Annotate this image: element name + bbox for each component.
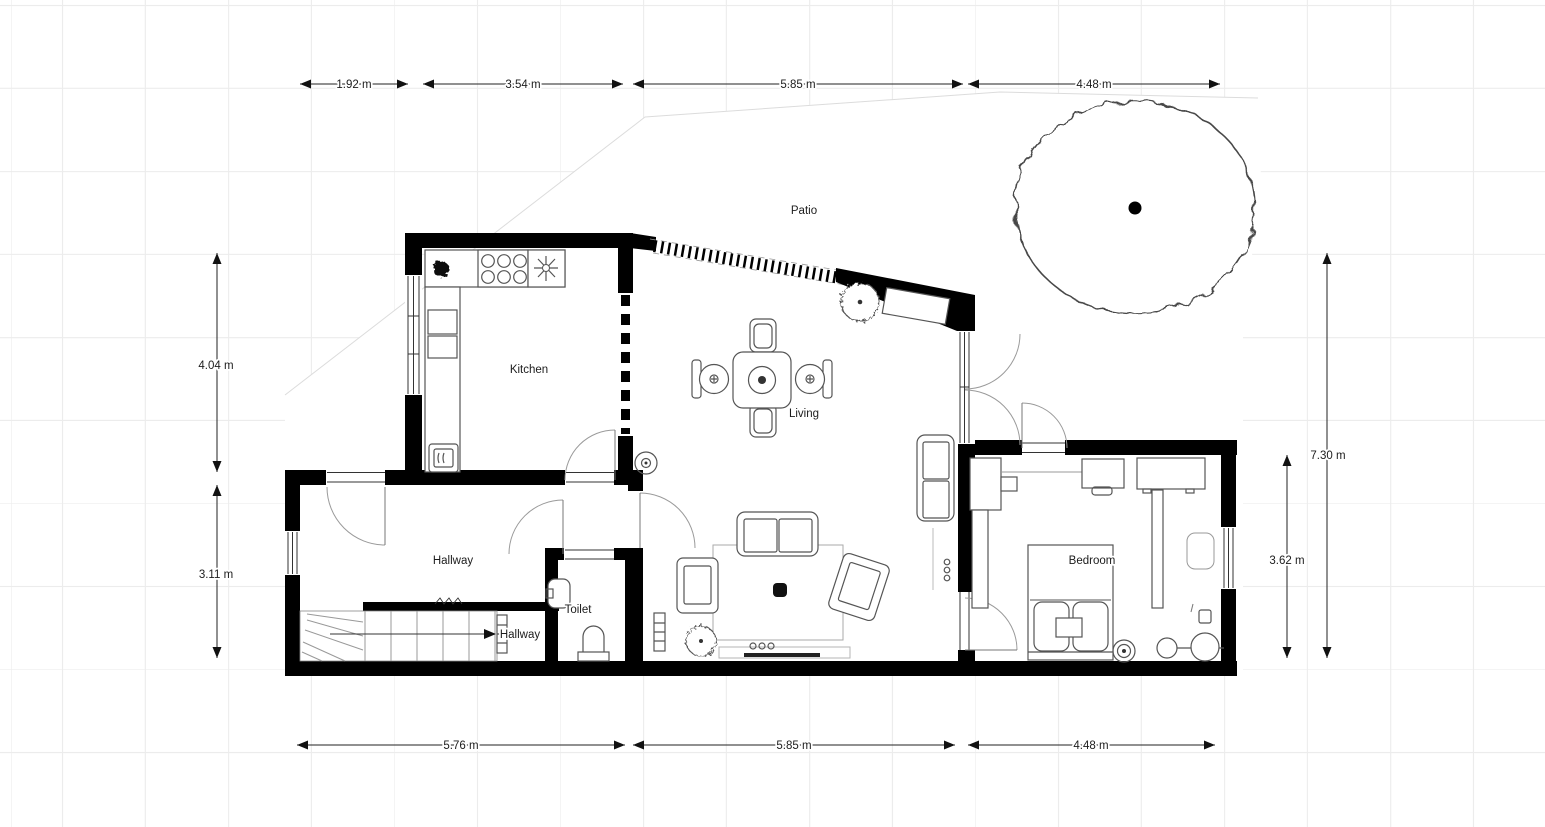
wall-hall-top-left[interactable] — [285, 470, 327, 485]
wall-kitchen-top[interactable] — [405, 233, 633, 248]
dimension-left-1: 4.04 m — [198, 253, 233, 472]
svg-text:4.04 m: 4.04 m — [198, 360, 233, 372]
wall-bedroom-east-upper[interactable] — [1221, 440, 1236, 528]
svg-text:3.62 m: 3.62 m — [1269, 555, 1304, 567]
wall-hall-living-lower[interactable] — [625, 548, 643, 661]
floorplan-canvas[interactable]: Patio Kitchen Living Hallway Hallway Toi… — [0, 0, 1545, 827]
sofa-two-seat[interactable] — [737, 512, 818, 556]
svg-text:5.85 m: 5.85 m — [776, 740, 811, 752]
svg-text:4.48 m: 4.48 m — [1073, 740, 1108, 752]
wall-hall-top-right[interactable] — [385, 470, 408, 485]
svg-text:1.92 m: 1.92 m — [336, 79, 371, 91]
kitchen-window[interactable] — [405, 275, 422, 395]
kitchen-plant[interactable] — [433, 261, 449, 277]
wall-hall-living-upper[interactable] — [628, 485, 643, 491]
wall-toilet-top-right[interactable] — [614, 548, 643, 560]
kitchen-label[interactable]: Kitchen — [510, 364, 548, 376]
wall-bottom[interactable] — [285, 661, 1237, 676]
oven[interactable] — [429, 444, 458, 472]
kitchen-sink[interactable] — [428, 310, 457, 358]
wall-living-bedroom-lower[interactable] — [958, 650, 975, 661]
wall-kitchen-west-upper[interactable] — [405, 233, 422, 276]
dimension-top-2: 3.54 m — [423, 79, 623, 91]
wall-toilet-top-left[interactable] — [545, 548, 565, 560]
svg-text:3.11 m: 3.11 m — [199, 569, 233, 581]
toilet-label[interactable]: Toilet — [565, 604, 593, 616]
wall-stair-guard[interactable] — [363, 602, 559, 611]
dimension-left-2: 3.11 m — [199, 485, 233, 658]
potted-plant-rug[interactable] — [686, 626, 716, 656]
patio-label[interactable]: Patio — [791, 205, 817, 217]
tree-trunk — [1129, 202, 1142, 215]
desk-large[interactable] — [1137, 458, 1205, 493]
stove[interactable] — [478, 250, 528, 287]
tree[interactable] — [1015, 101, 1255, 313]
dimension-right-2: 3.62 m — [1269, 455, 1304, 658]
sofa-wall[interactable] — [917, 435, 954, 521]
divider-post-top[interactable] — [618, 233, 633, 293]
french-door-frame[interactable] — [957, 331, 975, 444]
dimension-top-1: 1.92 m — [300, 79, 408, 91]
extractor-fan-icon[interactable] — [528, 250, 565, 287]
tall-cabinet[interactable] — [1152, 490, 1163, 608]
svg-text:5.85 m: 5.85 m — [780, 79, 815, 91]
hallway-lower-label[interactable]: Hallway — [500, 629, 541, 641]
dimension-bottom-2: 5.85 m — [633, 740, 955, 752]
wall-hall-west-lower[interactable] — [285, 574, 300, 661]
dimension-bottom-1: 5.76 m — [297, 740, 625, 752]
bedroom-label[interactable]: Bedroom — [1069, 555, 1116, 567]
tv-screen — [744, 653, 820, 657]
dimension-bottom-3: 4.48 m — [968, 740, 1215, 752]
coffee-table[interactable] — [773, 583, 787, 597]
dimension-top-3: 5.85 m — [633, 79, 963, 91]
svg-text:3.54 m: 3.54 m — [505, 79, 540, 91]
dimension-top-4: 4.48 m — [968, 79, 1220, 91]
wall-kitchen-west-lower[interactable] — [405, 394, 422, 485]
svg-text:7.30 m: 7.30 m — [1310, 450, 1345, 462]
svg-text:4.48 m: 4.48 m — [1076, 79, 1111, 91]
svg-text:5.76 m: 5.76 m — [443, 740, 478, 752]
hallway-label[interactable]: Hallway — [433, 555, 474, 567]
wall-kitchen-south-right[interactable] — [614, 470, 643, 485]
living-label[interactable]: Living — [789, 408, 819, 420]
divider-post-bottom[interactable] — [618, 436, 633, 470]
hallway-window[interactable] — [285, 531, 300, 575]
wall-bedroom-top-right[interactable] — [1065, 440, 1237, 455]
potted-plant-living[interactable] — [841, 283, 879, 321]
bedroom-window[interactable] — [1221, 527, 1236, 589]
dimension-right-1: 7.30 m — [1310, 253, 1345, 658]
armchair-left[interactable] — [677, 558, 718, 613]
